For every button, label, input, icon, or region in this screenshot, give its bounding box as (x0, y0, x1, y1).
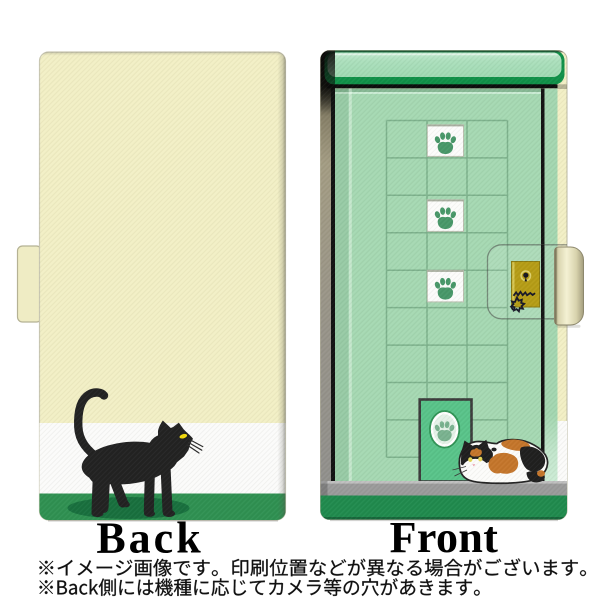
svg-text:Back: Back (96, 514, 203, 563)
svg-text:Front: Front (390, 513, 499, 562)
